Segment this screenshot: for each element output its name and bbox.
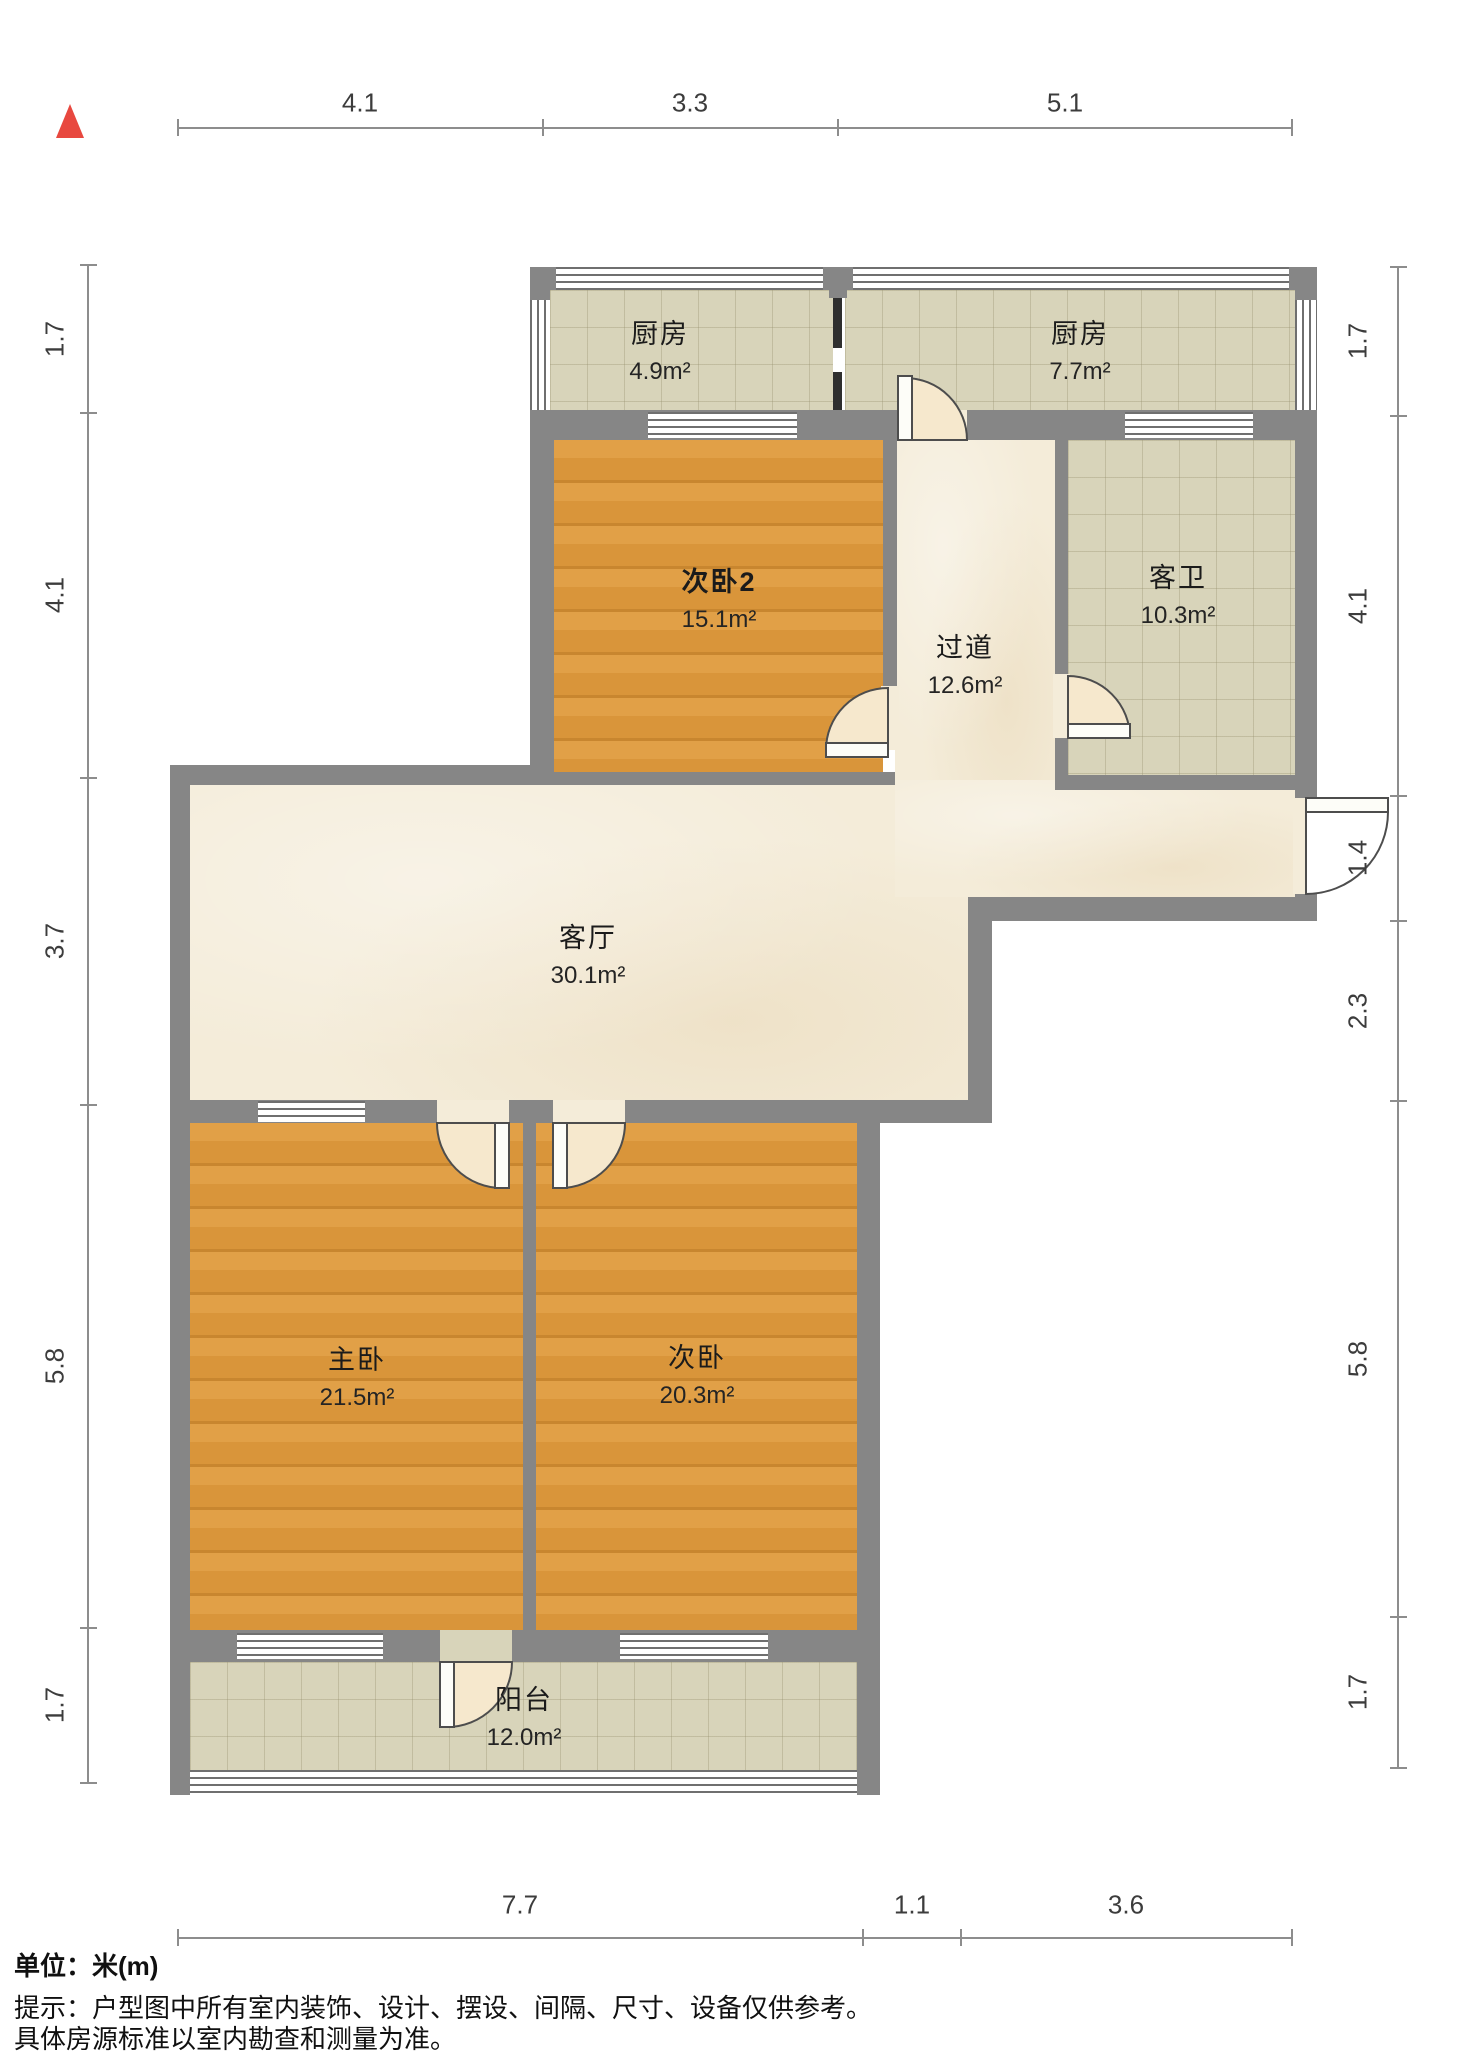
dim-left-3: 3.7 [40, 923, 71, 959]
dim-right-3: 1.4 [1343, 840, 1374, 876]
window-balcony [190, 1770, 857, 1795]
wall-living-top-left [170, 765, 530, 785]
room-label-living: 客厅 30.1m² [551, 916, 626, 990]
room-label-kitchen-small: 厨房 4.9m² [629, 312, 690, 386]
window-kitchen-right [1295, 300, 1317, 410]
room-label-corridor: 过道 12.6m² [928, 626, 1003, 700]
room-label-guest-bath: 客卫 10.3m² [1141, 556, 1216, 630]
dim-left-5: 1.7 [40, 1687, 71, 1723]
dim-top-2: 3.3 [672, 88, 708, 119]
window-kitchen-large-top [853, 267, 1289, 290]
window-kitchen-left [530, 300, 550, 410]
dim-right-6: 1.7 [1343, 1674, 1374, 1710]
north-arrow-icon [56, 104, 84, 138]
opening-kitchen-door [905, 410, 967, 440]
notes: 单位：米(m) 提示：户型图中所有室内装饰、设计、摆设、间隔、尺寸、设备仅供参考… [14, 1946, 872, 2055]
dim-right-2: 4.1 [1343, 588, 1374, 624]
dim-left-4: 5.8 [40, 1348, 71, 1384]
window-kitchen-small-top [556, 267, 823, 290]
floor-plan-page: { "rooms": { "kitchen_small": {"name": "… [0, 0, 1484, 2048]
floor-corridor [895, 440, 1055, 790]
room-label-bedroom: 次卧 20.3m² [660, 1336, 735, 1410]
opening-entry-door [1293, 798, 1319, 894]
window-bedroom-bottom [620, 1633, 768, 1659]
window-guest-bath-top [1125, 412, 1253, 438]
wall-living-step [968, 897, 992, 1123]
dim-bottom-2: 1.1 [894, 1890, 930, 1921]
room-label-bedroom2: 次卧2 15.1m² [681, 560, 756, 634]
dim-left-1: 1.7 [40, 321, 71, 357]
opening-master-door [437, 1100, 509, 1123]
dim-right-1: 1.7 [1343, 323, 1374, 359]
opening-guest-bath-door [1053, 674, 1070, 738]
window-kitchen-to-bedroom2 [648, 412, 797, 438]
wall-bedrooms-right [857, 1100, 880, 1795]
dim-bottom-1: 7.7 [502, 1890, 538, 1921]
floor-kitchen-small [550, 290, 833, 410]
dim-top-3: 5.1 [1047, 88, 1083, 119]
room-label-kitchen-large: 厨房 7.7m² [1049, 312, 1110, 386]
unit-label: 单位：米(m) [14, 1946, 872, 1983]
window-master-top [258, 1101, 365, 1122]
wall-kitchen-divider-post [829, 267, 847, 298]
dim-left-2: 4.1 [40, 577, 71, 613]
wall-bedroom2-bottom [530, 772, 895, 785]
dim-bottom-3: 3.6 [1108, 1890, 1144, 1921]
dim-right-5: 5.8 [1343, 1341, 1374, 1377]
opening-balcony-door [440, 1630, 512, 1662]
wall-guest-bath-bottom [1055, 775, 1295, 790]
room-label-master: 主卧 21.5m² [320, 1338, 395, 1412]
room-label-balcony: 阳台 12.0m² [487, 1678, 562, 1752]
tip-line-2: 具体房源标准以室内勘查和测量为准。 [14, 2024, 872, 2055]
opening-bedroom2-door [881, 686, 899, 750]
wall-bedroom-divider [523, 1123, 536, 1630]
wall-bedroom2-left [530, 440, 554, 785]
wall-entry-bottom [968, 897, 1317, 921]
tip-line-1: 提示：户型图中所有室内装饰、设计、摆设、间隔、尺寸、设备仅供参考。 [14, 1993, 872, 2024]
opening-bedroom-door [553, 1100, 625, 1123]
floor-living-entry [895, 780, 1295, 897]
dim-right-4: 2.3 [1343, 993, 1374, 1029]
window-master-bottom [237, 1633, 383, 1659]
dim-top-1: 4.1 [342, 88, 378, 119]
wall-kitchen-divider-gap [833, 348, 842, 372]
